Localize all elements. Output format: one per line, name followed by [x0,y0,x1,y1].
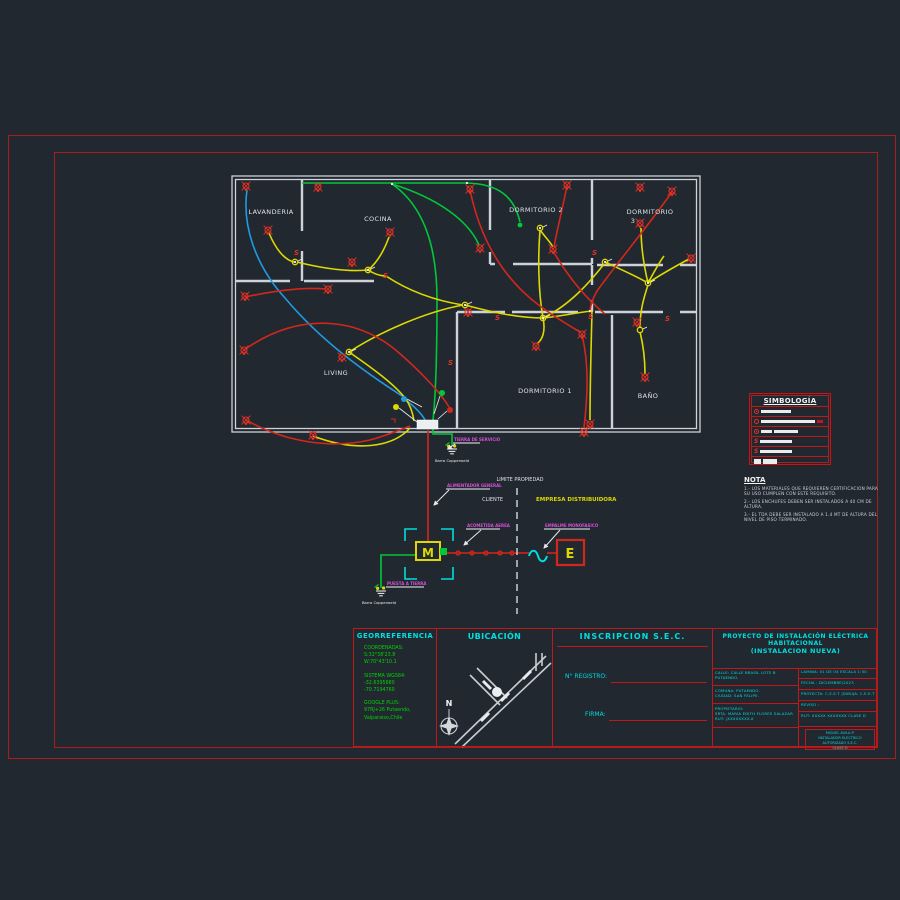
reviewer: REVISO : [799,701,878,712]
room-label-dormitorio2: DORMITORIO 2 [509,206,563,214]
empalme-label: EMPALME MONOFASICO [545,523,599,528]
switch-icon: S [448,359,453,367]
diagram-texts: LIMITE PROPIEDAD CLIENTE EMPRESA DISTRIB… [482,477,617,503]
plus-code-label: GOOGLE PLUS: [364,700,436,707]
distribution-board [391,390,453,429]
location-cell: UBICACIÓN [437,629,553,746]
outlet-icon [754,419,759,424]
acometida-label: ACOMETIDA AEREA [467,523,511,528]
switch-icon: S [754,449,758,455]
project-cell: PROYECTO DE INSTALACIÓN ELÉCTRICA HABITA… [713,629,878,746]
coordinate-s: S:32°38'23.8 [364,652,436,659]
georeference-cell: GEORREFERENCIA COORDENADAS: S:32°38'23.8… [354,629,437,746]
junction-box-symbols [292,225,655,355]
callouts: ALIMENTADOR GENERAL ACOMETIDA AEREA EMPA… [362,437,599,605]
blue-circuit-wires [246,190,425,420]
plus-code-2: Valparaiso,Chile [364,715,436,722]
note-item: 1.- LOS MATERIALES QUE REQUIEREN CERTIFI… [744,486,878,497]
room-label-dormitorio3-num: 3 [631,217,636,225]
inscription-cell: INSCRIPCION S.E.C. N° REGISTRO: FIRMA: [553,629,713,746]
owner-rut: RUT: |XXXXXXXX-X [715,716,796,721]
city: CIUDAD: SAN FELIPE. [715,693,796,698]
project-title-1: PROYECTO DE INSTALACIÓN ELÉCTRICA [713,629,878,640]
wgs-label: SISTEMA WGS84: [364,673,436,680]
room-label-dormitorio3: DORMITORIO [627,208,674,216]
meter-ground-connector [440,548,447,555]
wire-nodes [294,182,649,353]
yellow-circuit-wires [269,228,689,446]
installer-class: CLASE D [806,746,874,751]
coordinate-w: W:70°43'10.1 [364,659,436,666]
blue-tap [401,396,407,402]
room-label-dormitorio1: DORMITORIO 1 [518,387,572,395]
room-label-bano: BAÑO [638,391,658,400]
date: FECHA : DICIEMBRE/2023 [799,679,878,690]
limite-propiedad-label: LIMITE PROPIEDAD [497,477,544,483]
note-item: 3.- EL TDA DEBE SER INSTALADO A 1.4 MT D… [744,512,878,523]
wgs-lat: -32.6395880 [364,680,436,687]
registry-number-label: N° REGISTRO: [565,673,607,680]
notes-title: NOTA [744,476,878,484]
street-line-2: PUTAENDO. [715,675,796,680]
room-label-cocina: COCINA [364,215,392,223]
legend-row: S [752,446,828,456]
legend-row [752,416,828,426]
ceiling-light-symbols [240,181,696,440]
switch-icon: S [665,315,670,323]
coordinates-label: COORDENADAS: [364,645,436,652]
red-tap [447,407,453,413]
plus-code-1: 97RJ+26 Putaendo, [364,707,436,714]
wgs-lon: -70.7194760 [364,687,436,694]
designer: PROYECTA: C.E.E.T |DIBUJA: C.E.E.T [799,690,878,701]
legend-box: SIMBOLOGÍA S S [749,393,831,465]
project-title-3: (INSTALACION NUEVA) [713,647,878,655]
legend-row: S [752,436,828,446]
legend-row [752,406,828,416]
cliente-label: CLIENTE [482,497,503,503]
rut-class: RUT: XXXXX XXXXXXX CLASE D [799,712,878,727]
meter-letter: M [422,546,434,560]
location-header: UBICACIÓN [437,629,552,641]
notes-block: NOTA 1.- LOS MATERIALES QUE REQUIEREN CE… [744,476,878,525]
switch-icon: S [754,439,758,445]
lamp-icon [754,409,759,414]
empalme-letter: E [566,547,575,562]
sheet-scale: LAMINA: 01 DE 04 ESCALA 1:50 [799,668,878,679]
yellow-tap [393,404,399,410]
georeference-header: GEORREFERENCIA [354,629,436,640]
note-item: 2.- LOS ENCHUFES DEBEN SER INSTALADOS A … [744,499,878,510]
switch-icon: S [588,313,593,321]
barra-copperweld-label: Barra Copperweld [435,458,470,463]
green-tap [439,390,445,396]
inscription-header: INSCRIPCION S.E.C. [553,629,712,641]
project-title-2: HABITACIONAL [713,640,878,647]
cad-drawing-canvas: S S S S S S S [0,0,900,900]
empresa-distribuidora-label: EMPRESA DISTRIBUIDORA [536,497,617,503]
legend-row [752,426,828,436]
switch-icon: S [383,272,388,280]
legend-row [752,456,828,466]
room-labels: LAVANDERIA COCINA DORMITORIO 2 DORMITORI… [248,206,673,400]
puesta-tierra-label: PUESTA A TIERRA [387,581,427,586]
alimentador-label: ALIMENTADOR GENERAL [447,483,502,488]
switch-icon: S [592,249,597,257]
service-diagram: M E [405,488,584,614]
service-drop-symbol [529,551,547,562]
switch-icon: S [294,249,299,257]
title-block: GEORREFERENCIA COORDENADAS: S:32°38'23.8… [353,628,877,747]
tierra-servicio-label: TIERRA DE SERVICIO [454,437,501,442]
signature-label: FIRMA: [585,711,606,718]
room-label-lavanderia: LAVANDERIA [248,208,293,216]
ground-electrode-symbols [375,443,458,596]
room-label-living: LIVING [324,369,348,377]
legend-title: SIMBOLOGÍA [752,396,828,406]
installer-signature-block: MIGUEL AVILA P. INSTALADOR ELECTRICO AUT… [805,729,875,750]
switch-icon: S [495,314,500,322]
outlet-icon [754,429,759,434]
barra-copperweld-label: Barra Copperweld [362,600,397,605]
